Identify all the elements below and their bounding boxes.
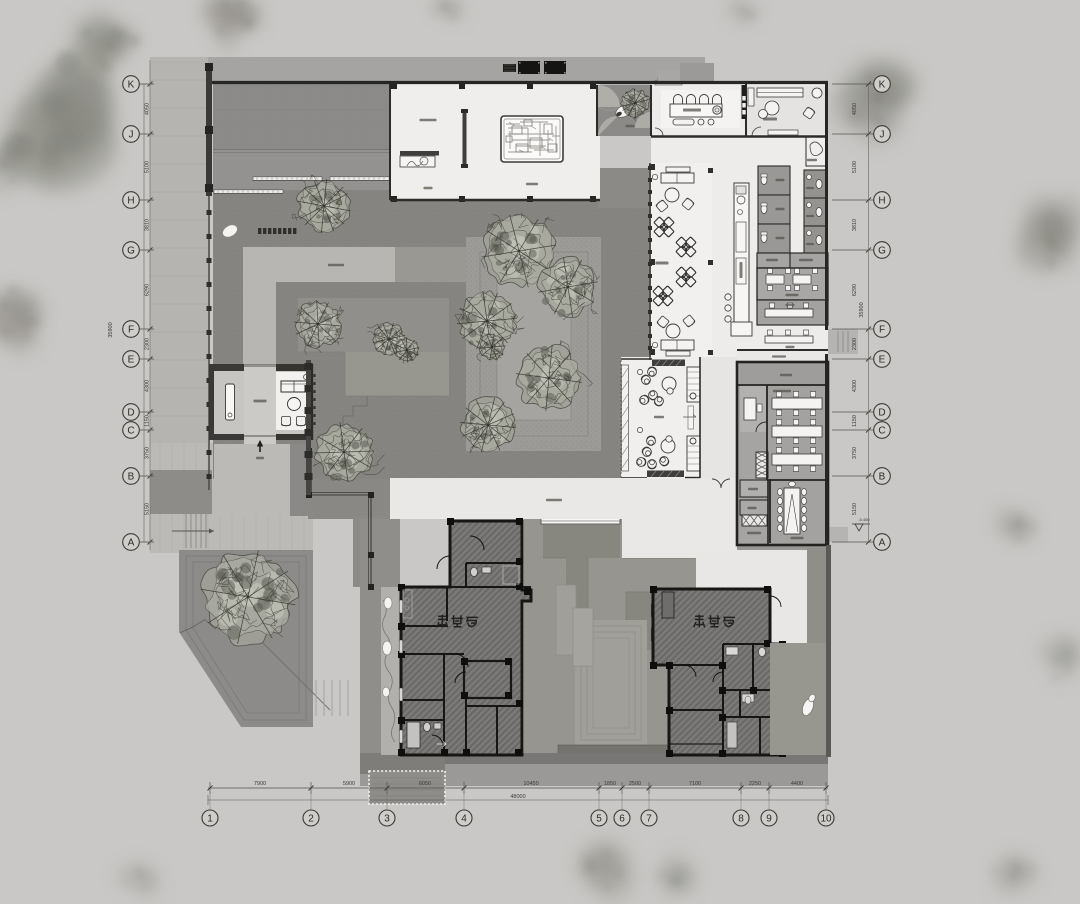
svg-text:1: 1 (207, 814, 213, 825)
svg-text:5: 5 (596, 814, 602, 825)
svg-text:1150: 1150 (145, 415, 151, 427)
svg-text:5150: 5150 (145, 503, 151, 515)
svg-text:7900: 7900 (254, 781, 266, 787)
svg-text:4: 4 (461, 814, 467, 825)
svg-text:7100: 7100 (689, 781, 701, 787)
svg-text:K: K (879, 80, 886, 91)
svg-text:9: 9 (766, 814, 772, 825)
svg-text:E: E (879, 355, 886, 366)
svg-text:8: 8 (738, 814, 744, 825)
svg-text:3810: 3810 (145, 219, 151, 231)
svg-text:J: J (880, 130, 885, 141)
svg-text:35900: 35900 (859, 302, 865, 317)
svg-text:G: G (878, 246, 886, 257)
svg-text:G: G (127, 246, 135, 257)
svg-text:B: B (879, 472, 886, 483)
svg-text:3750: 3750 (145, 447, 151, 459)
svg-text:2250: 2250 (749, 781, 761, 787)
svg-text:3750: 3750 (852, 447, 858, 459)
svg-text:10450: 10450 (523, 781, 538, 787)
svg-text:A: A (879, 538, 886, 549)
svg-text:H: H (127, 196, 134, 207)
svg-text:5900: 5900 (343, 781, 355, 787)
svg-text:A: A (128, 538, 135, 549)
svg-text:4400: 4400 (791, 781, 803, 787)
svg-text:6050: 6050 (419, 781, 431, 787)
svg-text:2500: 2500 (629, 781, 641, 787)
svg-text:4050: 4050 (852, 103, 858, 115)
svg-text:5150: 5150 (852, 503, 858, 515)
svg-text:4300: 4300 (145, 380, 151, 392)
svg-text:B: B (128, 472, 135, 483)
svg-text:6290: 6290 (145, 284, 151, 296)
svg-text:1850: 1850 (604, 781, 616, 787)
svg-text:K: K (128, 80, 135, 91)
svg-text:48000: 48000 (510, 794, 525, 800)
svg-text:H: H (878, 196, 885, 207)
svg-text:E: E (128, 355, 135, 366)
svg-text:5100: 5100 (145, 161, 151, 173)
svg-text:2300: 2300 (145, 338, 151, 350)
svg-text:10: 10 (820, 814, 832, 825)
svg-text:C: C (127, 426, 134, 437)
svg-text:C: C (878, 426, 885, 437)
svg-text:2: 2 (308, 814, 314, 825)
svg-text:35900: 35900 (108, 322, 114, 337)
svg-text:F: F (128, 325, 134, 336)
svg-text:7: 7 (646, 814, 652, 825)
svg-text:6: 6 (619, 814, 625, 825)
svg-text:2300: 2300 (852, 338, 858, 350)
svg-text:D: D (878, 408, 885, 419)
svg-text:J: J (129, 130, 134, 141)
svg-text:5100: 5100 (852, 161, 858, 173)
svg-text:3810: 3810 (852, 219, 858, 231)
svg-text:F: F (879, 325, 885, 336)
svg-text:4300: 4300 (852, 380, 858, 392)
svg-text:3: 3 (384, 814, 390, 825)
svg-text:D: D (127, 408, 134, 419)
svg-text:1150: 1150 (852, 415, 858, 427)
svg-text:4050: 4050 (145, 103, 151, 115)
svg-text:6290: 6290 (852, 284, 858, 296)
